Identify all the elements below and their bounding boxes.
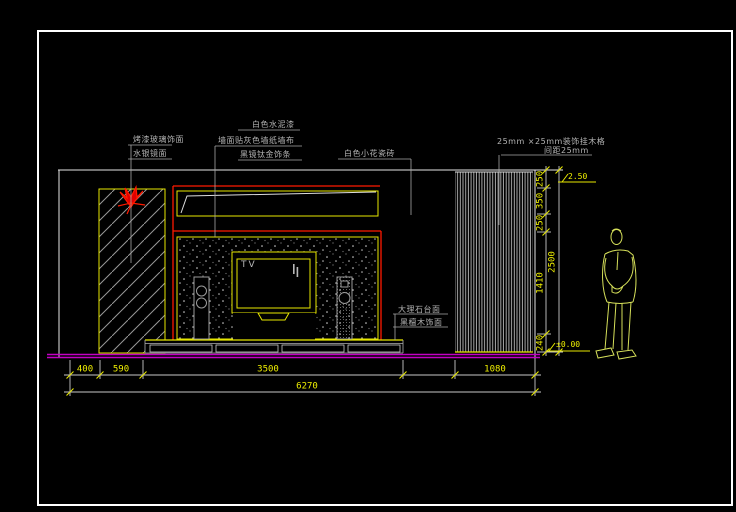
speaker-left <box>194 277 209 339</box>
dim-350: 350 <box>537 193 546 209</box>
top-niche <box>177 191 378 216</box>
label-titanium-trim: 黑镜钛金饰条 <box>240 150 291 159</box>
elevation-bottom-value: ±0.00 <box>556 341 580 349</box>
floor-line <box>47 355 540 358</box>
speaker-right <box>337 277 352 339</box>
label-left-panel-1: 烤漆玻璃饰面 <box>133 135 184 144</box>
cable-icon <box>293 264 295 274</box>
label-gray-wallpaper: 墙面贴灰色墙纸墙布 <box>218 136 295 145</box>
dim-240: 240 <box>537 335 546 351</box>
dim-1080: 1080 <box>484 366 506 375</box>
tv-label: TV <box>241 261 257 270</box>
dim-2500: 2500 <box>549 251 558 273</box>
cad-linework <box>0 0 736 512</box>
dim-590: 590 <box>113 366 129 375</box>
left-mirror-panel <box>99 189 165 353</box>
label-grille-spacing: 间距25mm <box>544 146 589 155</box>
dim-6270: 6270 <box>296 383 318 392</box>
elevation-top-value: 2.50 <box>568 173 587 181</box>
dim-250-top: 250 <box>537 171 546 187</box>
dim-1410: 1410 <box>537 272 546 294</box>
dim-400: 400 <box>77 366 93 375</box>
cad-elevation-drawing: 烤漆玻璃饰面 水银镜面 白色水泥漆 墙面贴灰色墙纸墙布 黑镜钛金饰条 白色小花瓷… <box>0 0 736 512</box>
label-marble-top: 大理石台面 <box>398 305 441 314</box>
label-grille-size: 25mm ×25mm装饰挂木格 <box>497 137 605 146</box>
dim-3500: 3500 <box>257 366 279 375</box>
label-white-tile: 白色小花瓷砖 <box>344 149 395 158</box>
tv-cabinet <box>145 340 403 353</box>
person-figure <box>596 229 636 359</box>
label-left-panel-2: 水银镜面 <box>133 149 167 158</box>
dim-250-mid: 250 <box>537 215 546 231</box>
label-white-cement-paint: 白色水泥漆 <box>252 120 295 129</box>
label-ebony-veneer: 黑檀木饰面 <box>400 318 443 327</box>
wood-grille-panel <box>455 172 533 352</box>
